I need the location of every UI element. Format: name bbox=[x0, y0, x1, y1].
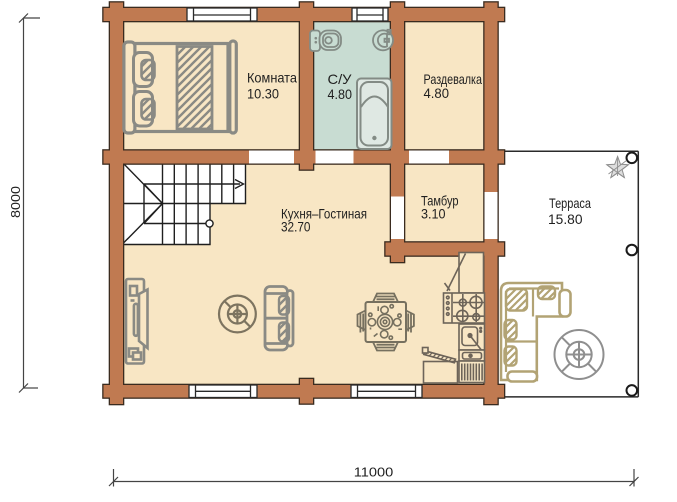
svg-text:4.80: 4.80 bbox=[424, 85, 450, 101]
svg-text:С/У: С/У bbox=[328, 71, 352, 87]
svg-text:11000: 11000 bbox=[354, 465, 394, 480]
svg-text:8000: 8000 bbox=[8, 186, 23, 218]
svg-text:4.80: 4.80 bbox=[328, 86, 353, 102]
svg-text:Терраса: Терраса bbox=[549, 195, 591, 211]
svg-text:Комната: Комната bbox=[247, 70, 297, 86]
svg-text:15.80: 15.80 bbox=[548, 211, 583, 227]
svg-text:32.70: 32.70 bbox=[281, 218, 311, 234]
svg-text:3.10: 3.10 bbox=[421, 205, 446, 221]
svg-text:10.30: 10.30 bbox=[247, 86, 279, 102]
